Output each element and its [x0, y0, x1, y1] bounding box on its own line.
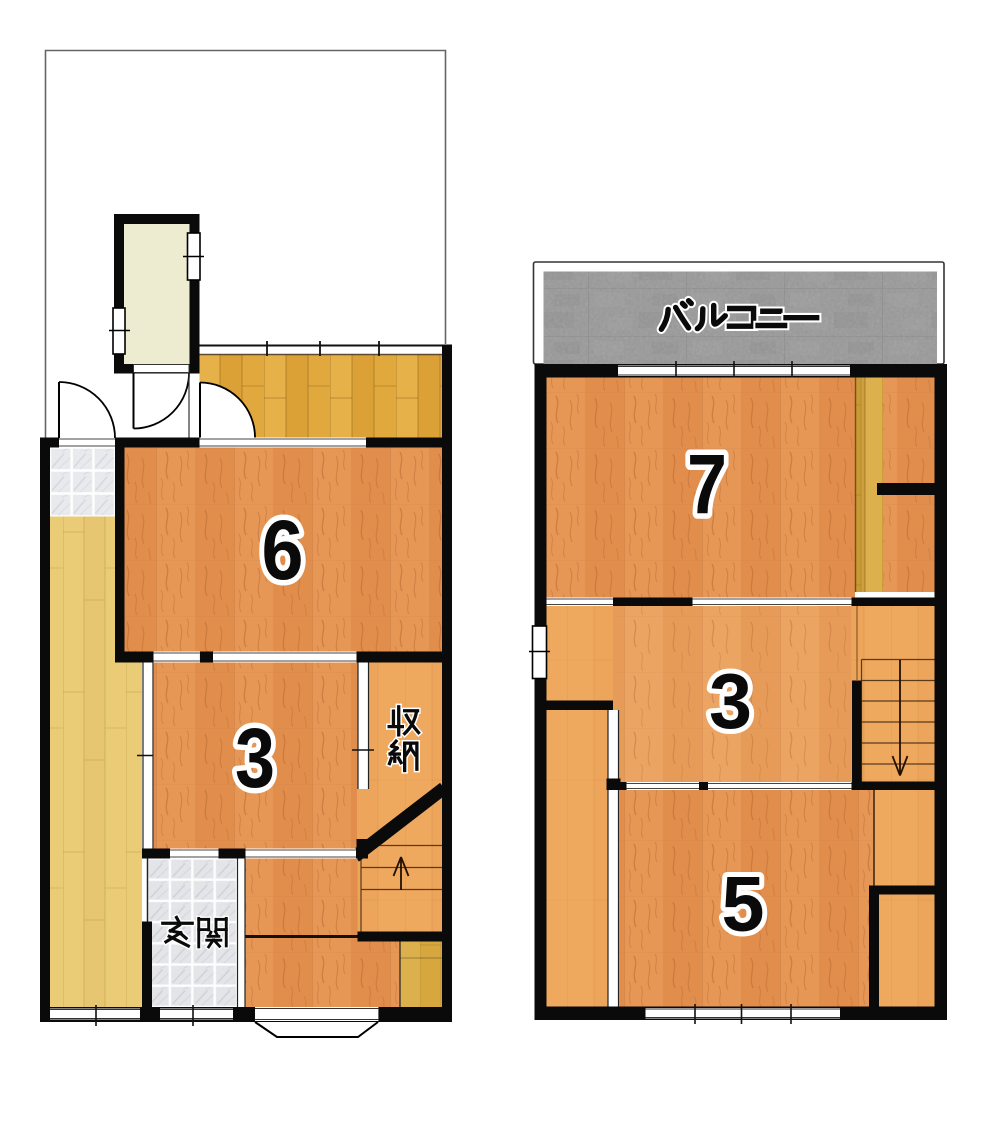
svg-text:7: 7	[687, 437, 727, 531]
svg-text:6: 6	[262, 503, 304, 597]
svg-text:5: 5	[722, 860, 765, 948]
svg-text:3: 3	[235, 711, 275, 805]
svg-text:3: 3	[709, 657, 752, 745]
